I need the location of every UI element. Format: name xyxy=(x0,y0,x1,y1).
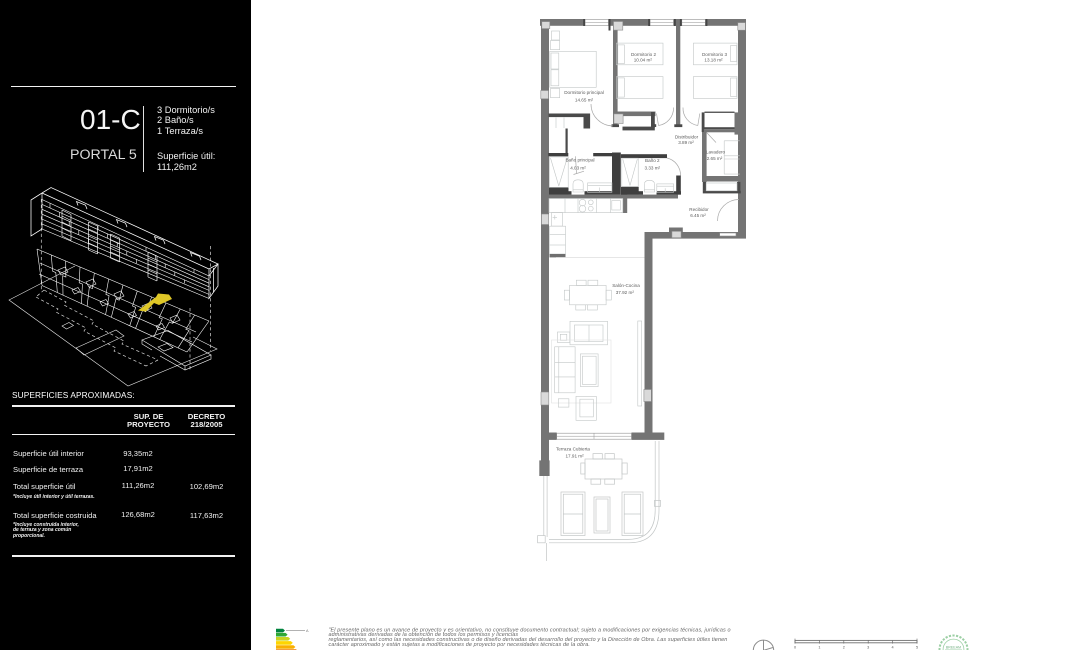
svg-text:Salón-Cocina: Salón-Cocina xyxy=(612,283,640,288)
svg-text:10.04 m²: 10.04 m² xyxy=(634,57,653,62)
svg-text:1: 1 xyxy=(818,646,820,650)
svg-text:Lavadero: Lavadero xyxy=(706,150,726,155)
svg-text:4: 4 xyxy=(892,646,894,650)
svg-text:Dormitorio 3: Dormitorio 3 xyxy=(702,52,727,57)
svg-text:3: 3 xyxy=(867,646,869,650)
svg-text:17.91 m²: 17.91 m² xyxy=(566,453,585,458)
svg-text:Recibidor: Recibidor xyxy=(689,207,709,212)
svg-text:BREEAM: BREEAM xyxy=(946,645,961,649)
svg-text:37.92 m²: 37.92 m² xyxy=(616,290,635,295)
svg-text:Distribuidor: Distribuidor xyxy=(675,134,699,139)
svg-text:5: 5 xyxy=(916,646,918,650)
svg-text:A: A xyxy=(306,629,309,633)
svg-text:0: 0 xyxy=(794,646,796,650)
svg-text:Dormitorio 2: Dormitorio 2 xyxy=(631,52,656,57)
svg-text:2.65 m²: 2.65 m² xyxy=(707,156,723,161)
svg-text:3.89 m²: 3.89 m² xyxy=(678,140,694,145)
svg-text:carácter aproximado y están su: carácter aproximado y están sujetas a mo… xyxy=(329,642,590,648)
svg-text:Baño 2: Baño 2 xyxy=(645,158,660,163)
svg-text:2: 2 xyxy=(843,646,845,650)
svg-text:Baño principal: Baño principal xyxy=(565,158,594,163)
svg-text:14.65 m²: 14.65 m² xyxy=(575,97,594,102)
svg-text:Dormitorio principal: Dormitorio principal xyxy=(564,90,604,95)
svg-text:3.33 m²: 3.33 m² xyxy=(645,165,661,170)
svg-text:4.03 m²: 4.03 m² xyxy=(570,165,586,170)
svg-text:13.18 m²: 13.18 m² xyxy=(704,57,723,62)
svg-text:Terraza Cubierta: Terraza Cubierta xyxy=(556,446,590,451)
svg-text:6.45 m²: 6.45 m² xyxy=(690,213,706,218)
